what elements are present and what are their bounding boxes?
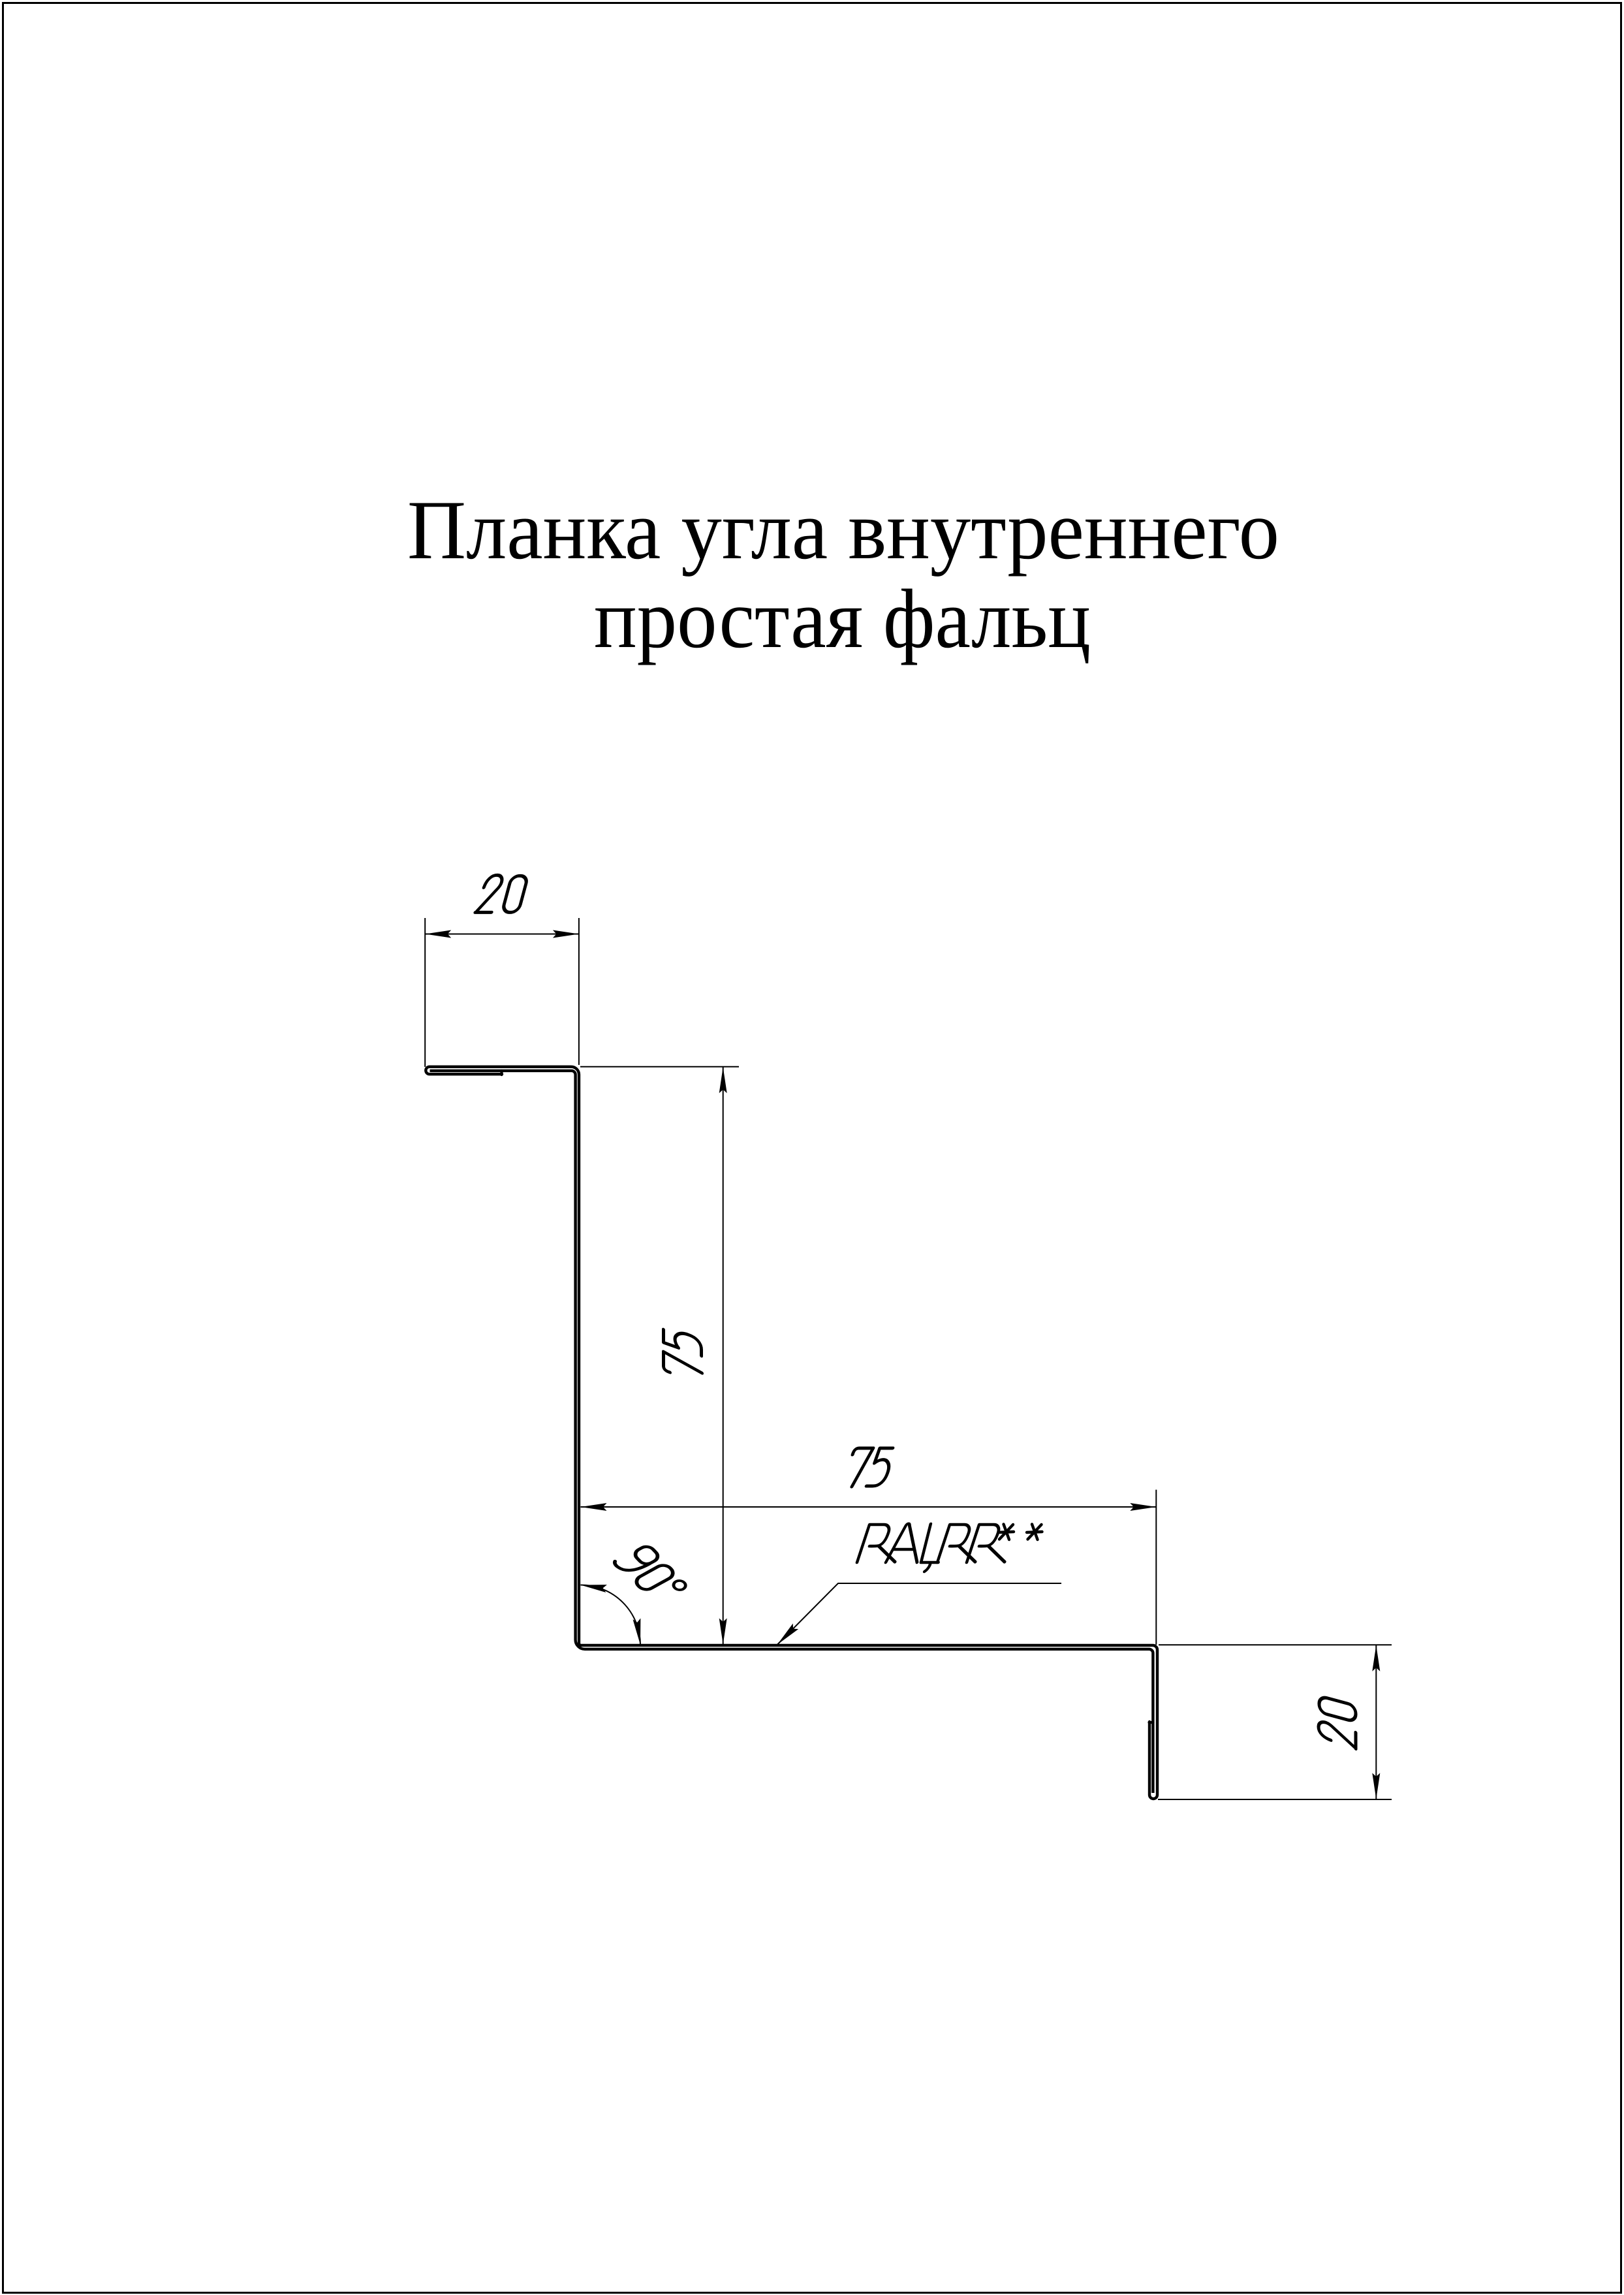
svg-text:Планка угла внутреннего: Планка угла внутреннего [407, 483, 1279, 577]
svg-text:простая фальц: простая фальц [594, 572, 1091, 665]
